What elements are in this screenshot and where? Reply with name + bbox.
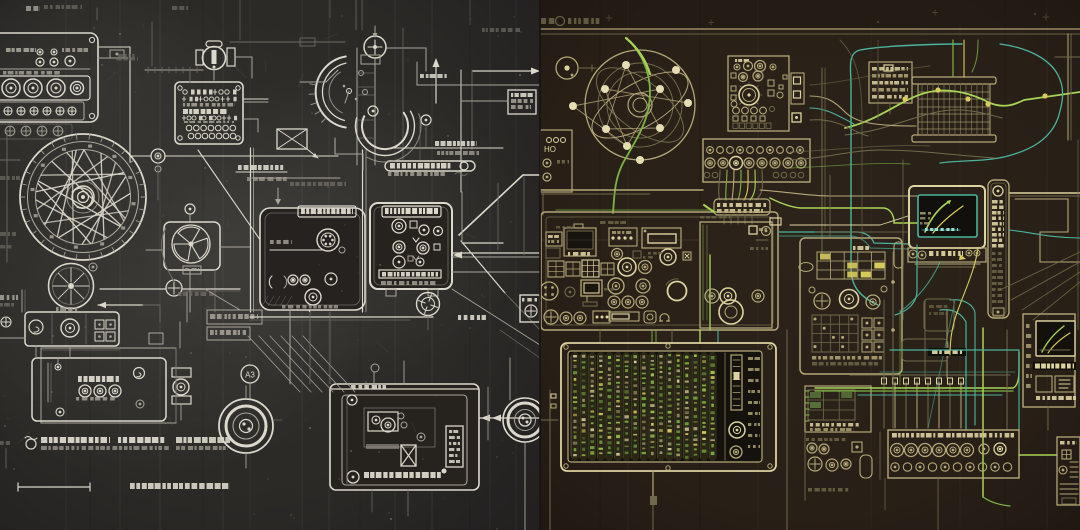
svg-text:A3: A3: [245, 371, 255, 380]
svg-text:НО: НО: [544, 145, 556, 154]
